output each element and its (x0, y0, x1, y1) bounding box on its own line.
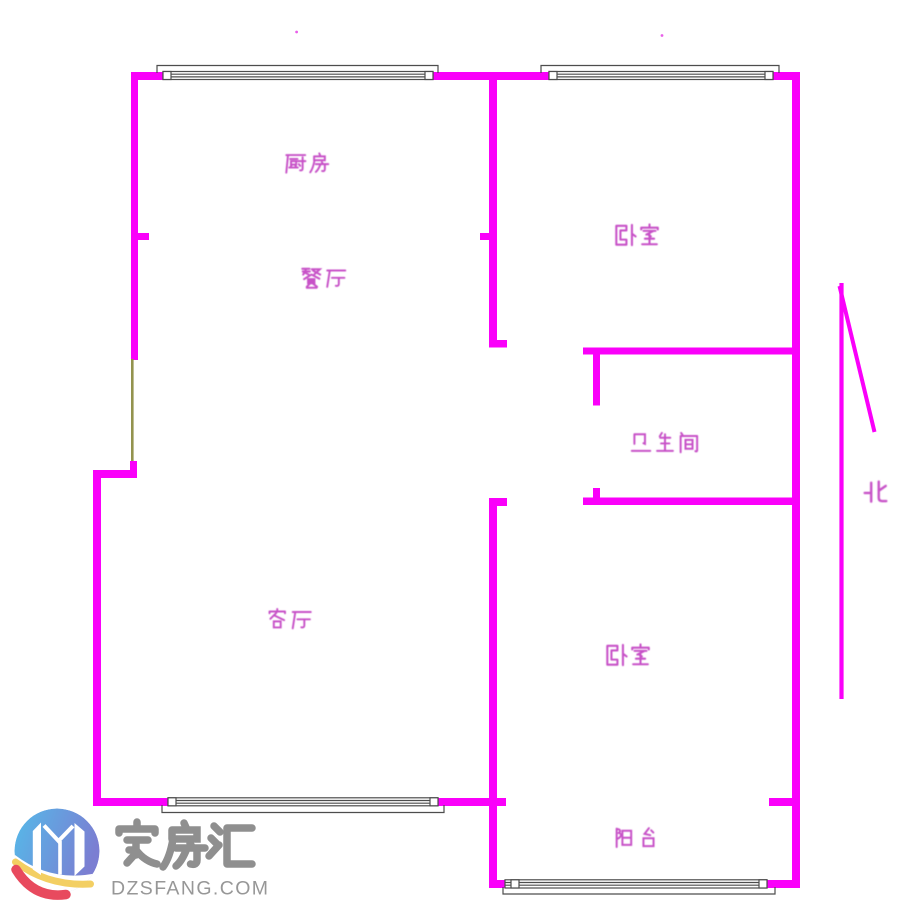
svg-text:DZSFANG.COM: DZSFANG.COM (111, 878, 269, 900)
